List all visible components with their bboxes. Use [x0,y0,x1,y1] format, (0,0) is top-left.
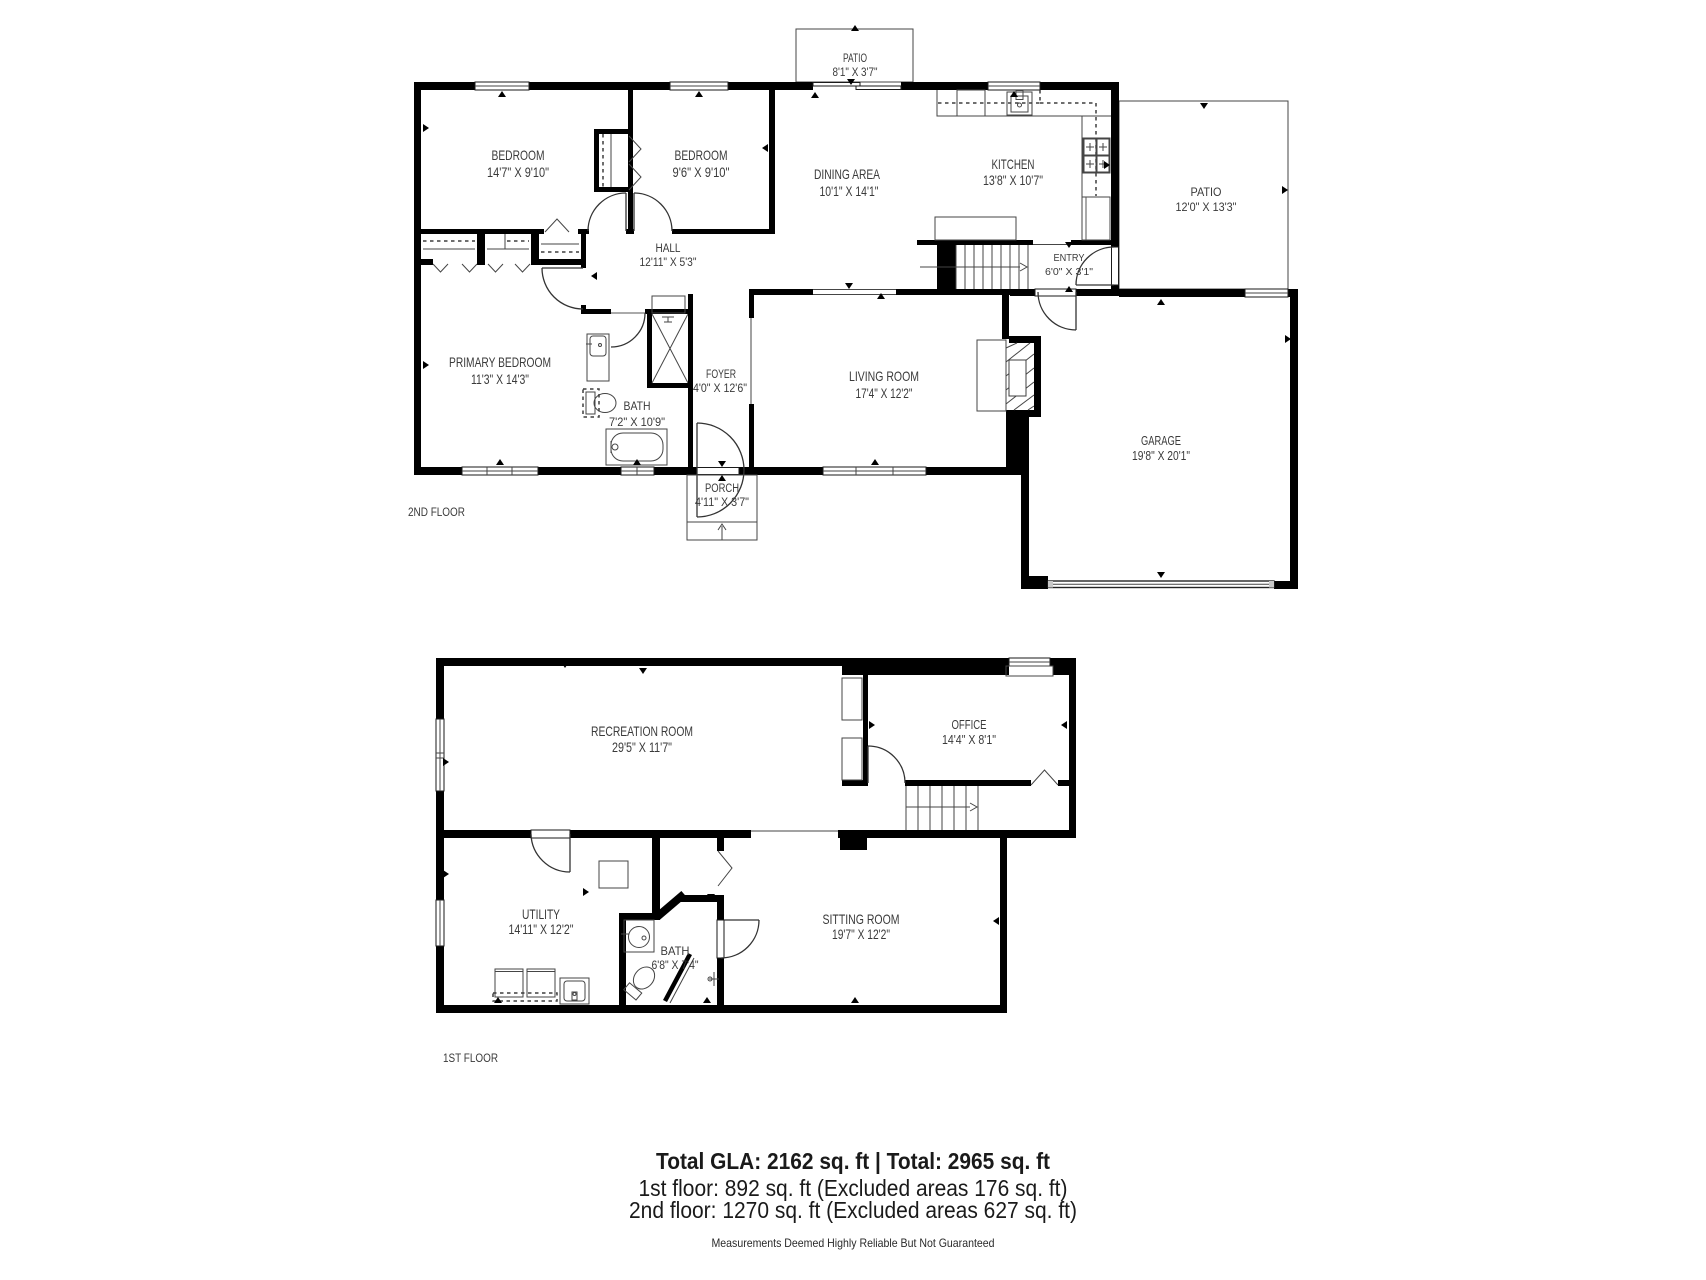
svg-text:SITTING ROOM: SITTING ROOM [823,911,900,927]
svg-text:19'8" X 20'1": 19'8" X 20'1" [1132,448,1190,463]
svg-text:7'2" X 10'9": 7'2" X 10'9" [609,415,665,429]
svg-text:GARAGE: GARAGE [1141,433,1181,448]
svg-text:6'0" X 3'1": 6'0" X 3'1" [1045,267,1093,278]
svg-text:PATIO: PATIO [1191,185,1222,199]
svg-text:4'0" X 12'6": 4'0" X 12'6" [693,383,747,395]
svg-text:ENTRY: ENTRY [1054,253,1085,264]
svg-text:17'4" X 12'2": 17'4" X 12'2" [856,385,913,401]
svg-text:12'0" X 13'3": 12'0" X 13'3" [1176,200,1237,214]
svg-text:BATH: BATH [661,944,690,958]
svg-text:KITCHEN: KITCHEN [992,156,1035,172]
svg-text:12'11" X 5'3": 12'11" X 5'3" [640,257,697,269]
svg-text:9'6" X 9'10": 9'6" X 9'10" [673,164,730,180]
svg-text:Total GLA: 2162 sq. ft | Total: Total GLA: 2162 sq. ft | Total: 2965 sq.… [656,1148,1050,1174]
svg-text:LIVING ROOM: LIVING ROOM [849,368,919,384]
svg-text:4'11" X 3'7": 4'11" X 3'7" [695,497,749,509]
svg-text:29'5" X 11'7": 29'5" X 11'7" [612,739,672,755]
svg-text:UTILITY: UTILITY [522,906,560,922]
svg-text:RECREATION ROOM: RECREATION ROOM [591,723,693,739]
svg-text:19'7" X 12'2": 19'7" X 12'2" [832,926,890,942]
svg-text:BATH: BATH [624,399,651,413]
svg-text:BEDROOM: BEDROOM [675,147,728,163]
svg-text:13'8" X 10'7": 13'8" X 10'7" [983,172,1043,188]
svg-text:6'8" X 7'4": 6'8" X 7'4" [652,958,699,972]
svg-text:14'11" X 12'2": 14'11" X 12'2" [509,921,574,937]
svg-text:2nd floor: 1270 sq. ft (Exclud: 2nd floor: 1270 sq. ft (Excluded areas 6… [629,1197,1077,1223]
svg-text:PRIMARY BEDROOM: PRIMARY BEDROOM [449,354,551,370]
svg-text:1ST FLOOR: 1ST FLOOR [443,1051,498,1065]
svg-text:11'3" X 14'3": 11'3" X 14'3" [471,371,529,387]
svg-text:14'4" X 8'1": 14'4" X 8'1" [942,732,996,747]
svg-text:BEDROOM: BEDROOM [492,147,545,163]
svg-text:10'1" X 14'1": 10'1" X 14'1" [820,183,879,199]
svg-text:Measurements Deemed Highly Rel: Measurements Deemed Highly Reliable But … [712,1236,995,1250]
svg-text:HALL: HALL [656,243,682,255]
svg-text:14'7" X 9'10": 14'7" X 9'10" [487,164,549,180]
svg-text:PATIO: PATIO [843,53,867,65]
svg-text:DINING AREA: DINING AREA [814,166,880,182]
svg-text:2ND FLOOR: 2ND FLOOR [408,505,465,519]
svg-text:8'1" X 3'7": 8'1" X 3'7" [833,67,878,79]
svg-text:PORCH: PORCH [705,483,739,495]
svg-text:FOYER: FOYER [706,369,736,381]
svg-text:OFFICE: OFFICE [952,717,987,732]
